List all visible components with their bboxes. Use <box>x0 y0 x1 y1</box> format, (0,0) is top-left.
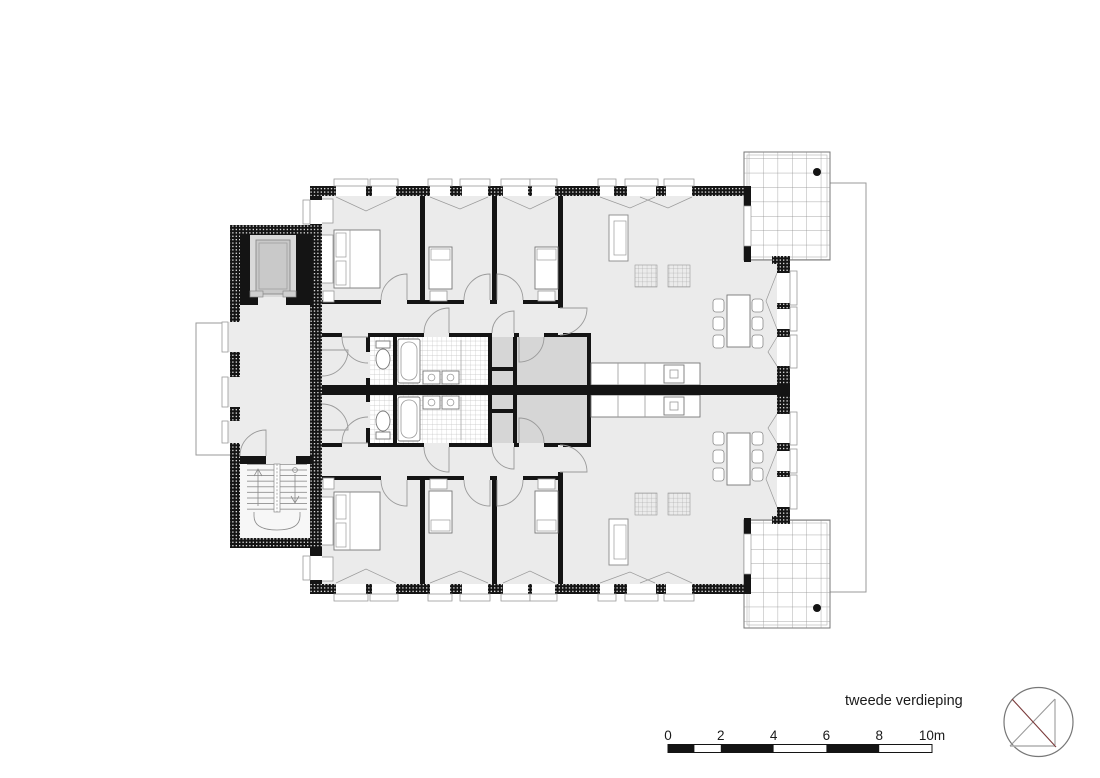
window-opening <box>310 200 322 224</box>
window-opening <box>228 322 240 352</box>
toilet-icon <box>376 349 390 369</box>
scale-tick-label: 4 <box>770 728 778 743</box>
sink-icon <box>423 371 440 384</box>
right-canopy-outline <box>830 183 866 592</box>
elevator-car-icon <box>256 240 290 294</box>
elevator-sill <box>283 291 296 297</box>
window-opening <box>228 421 240 443</box>
rug-icon <box>635 265 657 287</box>
scale-bar: 0 2 4 6 8 10m <box>664 728 945 753</box>
shaft-room <box>492 337 513 385</box>
double-bed-icon <box>334 230 380 288</box>
scale-bar-outline <box>668 745 932 753</box>
toilet-tank <box>376 341 390 348</box>
nightstand-icon <box>430 291 447 301</box>
hall <box>240 303 310 460</box>
elevator-sill <box>250 291 263 297</box>
window-frames <box>334 179 694 186</box>
window-frame <box>222 322 228 352</box>
sink-icon <box>442 371 459 384</box>
window-frame <box>222 421 228 443</box>
cooktop-icon <box>664 365 684 383</box>
shaft-wall <box>296 235 312 303</box>
balcony-door <box>744 206 751 246</box>
north-diagonal-red <box>1012 699 1056 747</box>
dining-table-icon <box>727 295 750 347</box>
party-wall <box>310 385 790 395</box>
nightstand-icon <box>538 291 555 301</box>
window-frame <box>222 377 228 407</box>
floor-plan-drawing: tweede verdieping 0 2 4 6 8 10m <box>0 0 1100 778</box>
drawing-caption: tweede verdieping <box>845 693 963 709</box>
rug-icon <box>668 265 690 287</box>
north-arrow-icon <box>1004 688 1073 757</box>
scale-bar-filled-segment <box>668 745 694 753</box>
sofa-icon <box>609 215 628 261</box>
shaft-wall <box>240 235 250 303</box>
elevator-door-opening <box>258 297 286 305</box>
scale-tick-label: 6 <box>823 728 831 743</box>
wardrobe-icon <box>321 235 333 283</box>
scale-tick-label: 2 <box>717 728 725 743</box>
scale-bar-filled-segment <box>826 745 879 753</box>
kitchen-counter <box>591 363 700 385</box>
scale-bar-filled-segment <box>721 745 774 753</box>
window-frame <box>303 556 310 580</box>
window-openings <box>336 186 692 196</box>
window-opening <box>228 377 240 407</box>
stair-elevator-core <box>222 225 322 548</box>
window-frame <box>303 200 310 224</box>
floor-plan-sheet: tweede verdieping 0 2 4 6 8 10m <box>0 0 1100 778</box>
nightstand-icon <box>323 291 334 302</box>
window-openings <box>777 273 790 366</box>
stair-door-opening <box>266 456 296 464</box>
single-bed-icon <box>535 247 558 289</box>
wardrobe-icon <box>321 199 333 223</box>
window-frames <box>790 271 797 368</box>
window-opening <box>310 556 322 580</box>
scale-tick-label: 0 <box>664 728 672 743</box>
hall-windows <box>222 322 240 443</box>
scale-tick-label: 8 <box>875 728 883 743</box>
balcony-drain-icon <box>813 168 821 176</box>
scale-tick-label: 10m <box>919 728 945 743</box>
single-bed-icon <box>429 247 452 289</box>
balcony <box>744 152 830 260</box>
